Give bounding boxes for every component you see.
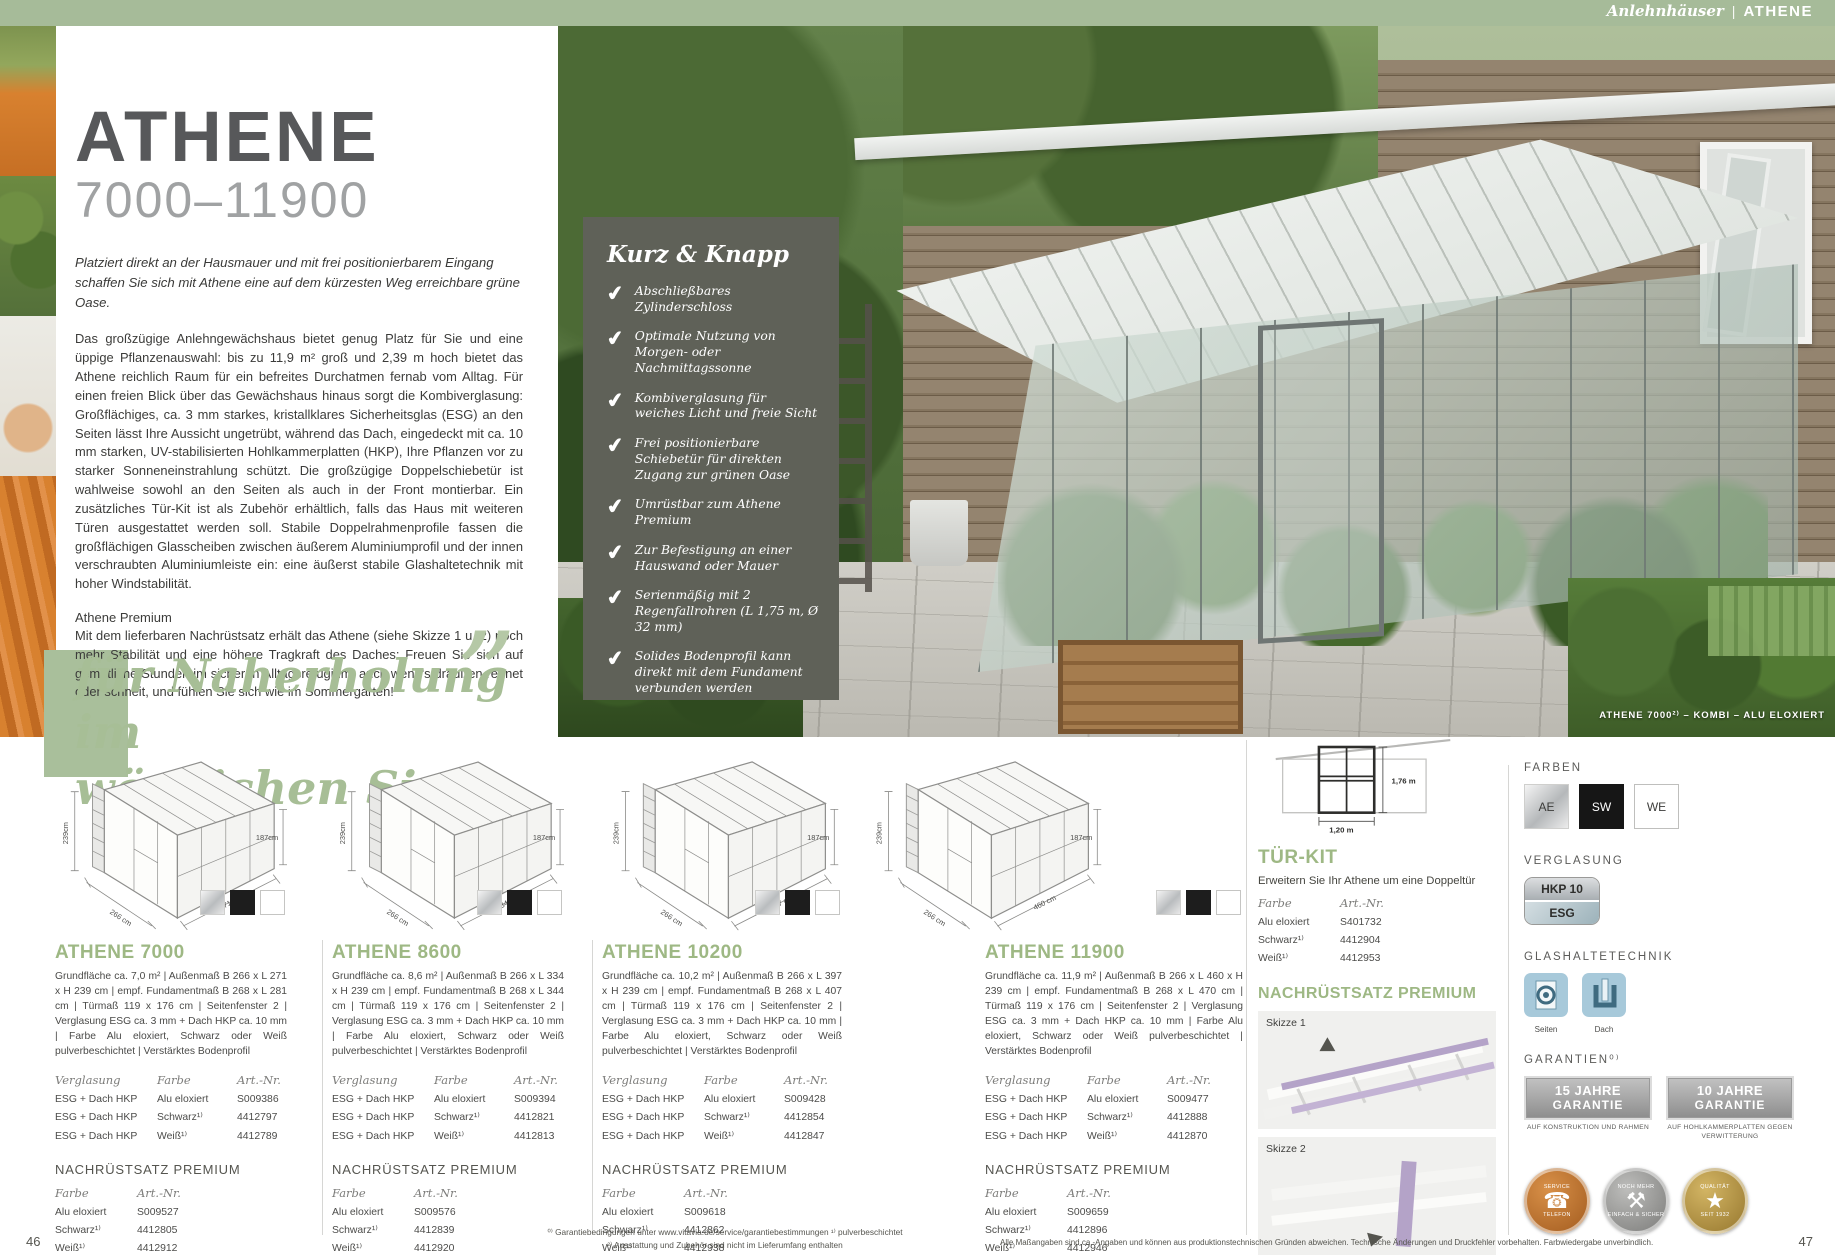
dim-wall-height: 239cm <box>612 822 621 844</box>
feature-text: Optimale Nutzung von Morgen- oder Nachmi… <box>635 329 819 376</box>
table-row: Schwarz¹⁾4412904 <box>1258 932 1496 950</box>
table-row: Schwarz¹⁾4412805 <box>55 1222 287 1240</box>
verglasung-title: VERGLASUNG <box>1524 855 1814 867</box>
check-icon: ✔ <box>606 496 625 518</box>
greenhouse-diagram: 239cm 187cm 266 cm 460 cm <box>835 752 1135 938</box>
sliding-door <box>1258 318 1384 644</box>
footnote-2: ²⁾ Ausstattung und Zubehör sind nicht im… <box>455 1239 995 1251</box>
tuerkit-subtitle: Erweitern Sie Ihr Athene um eine Doppelt… <box>1258 875 1496 887</box>
page-title: ATHENE <box>75 102 523 173</box>
table-header: FarbeArt.-Nr. <box>55 1186 287 1200</box>
retrofit-title: NACHRÜSTSATZ PREMIUM <box>332 1162 564 1177</box>
table-row: ESG + Dach HKPWeiß¹⁾4412789 <box>55 1128 287 1146</box>
flowers-photo <box>0 316 56 476</box>
color-swatches <box>1156 890 1241 915</box>
garden-fence <box>1708 586 1835 656</box>
table-row: Alu eloxiertS401732 <box>1258 914 1496 932</box>
breadcrumb-separator: | <box>1732 3 1736 19</box>
table-header: FarbeArt.-Nr. <box>602 1186 842 1200</box>
dim-width: 266 cm <box>659 907 684 928</box>
side-clamp-icon <box>1524 973 1568 1017</box>
table-row: Weiß¹⁾4412912 <box>55 1240 287 1258</box>
check-icon: ✔ <box>606 390 625 412</box>
table-row: Alu eloxiertS009527 <box>55 1204 287 1222</box>
table-row: Alu eloxiertS009659 <box>985 1204 1243 1222</box>
retrofit-title: NACHRÜSTSATZ PREMIUM <box>602 1162 842 1177</box>
table-header: Verglasung Farbe Art.-Nr. <box>332 1073 564 1087</box>
phone-icon: ☎ <box>1543 1190 1570 1212</box>
skizze-1-panel: Skizze 1 <box>1258 1011 1496 1129</box>
table-row: ESG + Dach HKPWeiß¹⁾4412870 <box>985 1128 1243 1146</box>
table-row: ESG + Dach HKPAlu eloxiertS009428 <box>602 1091 842 1109</box>
retrofit-premium-title: NACHRÜSTSATZ PREMIUM <box>1258 985 1496 1003</box>
feature-text: Kombiverglasung für weiches Licht und fr… <box>635 391 819 422</box>
product-description: Grundfläche ca. 8,6 m² | Außenmaß B 266 … <box>332 969 564 1059</box>
left-photo-strip <box>0 26 56 737</box>
tools-icon: ⚒ <box>1626 1190 1646 1212</box>
list-item: ✔Umrüstbar zum Athene Premium <box>607 497 819 528</box>
warranty-years: 10 JAHRE <box>1668 1083 1792 1098</box>
table-row: ESG + Dach HKPSchwarz¹⁾4412888 <box>985 1109 1243 1127</box>
table-header: FarbeArt.-Nr. <box>332 1186 564 1200</box>
swatch-alu-icon <box>755 890 780 915</box>
door-height-label: 1,76 m <box>1392 776 1416 785</box>
body-paragraph: Das großzügige Anlehngewächshaus bietet … <box>75 330 523 594</box>
dim-wall-height: 239cm <box>61 822 70 844</box>
swatch-weiss: WE <box>1634 784 1679 829</box>
list-item: ✔Optimale Nutzung von Morgen- oder Nachm… <box>607 329 819 376</box>
swatch-black-icon <box>785 890 810 915</box>
category-label: Anlehnhäuser <box>1607 2 1724 20</box>
col-art: Art.-Nr. <box>237 1073 287 1087</box>
tuerkit-title: TÜR-KIT <box>1258 847 1496 869</box>
table-row: Alu eloxiertS009618 <box>602 1204 842 1222</box>
dim-width: 266 cm <box>385 907 410 928</box>
warranty-10: 10 JAHRE GARANTIE AUF HOHLKAMMERPLATTEN … <box>1666 1076 1794 1142</box>
table-header: FarbeArt.-Nr. <box>1258 896 1496 910</box>
garantien-title: GARANTIEN⁰⁾ <box>1524 1052 1814 1066</box>
divider <box>592 940 593 1235</box>
table-header: Verglasung Farbe Art.-Nr. <box>602 1073 842 1087</box>
feature-text: Frei positionierbare Schiebetür für dire… <box>635 436 819 483</box>
list-item: ✔Zur Befestigung an einer Hauswand oder … <box>607 543 819 574</box>
table-header: Verglasung Farbe Art.-Nr. <box>985 1073 1243 1087</box>
photo-caption: ATHENE 7000²⁾ – KOMBI – ALU ELOXIERT <box>1513 710 1825 721</box>
dim-width: 266 cm <box>922 907 947 928</box>
swatch-alu-eloxiert: AE <box>1524 784 1569 829</box>
door-width-label: 1,20 m <box>1329 826 1353 835</box>
feature-text: Abschließbares Zylinderschloss <box>635 284 819 315</box>
col-color: Farbe <box>157 1073 237 1087</box>
product-name: ATHENE 11900 <box>985 942 1243 964</box>
roof-label: Dach <box>1582 1025 1626 1034</box>
table-header: Verglasung Farbe Art.-Nr. <box>55 1073 287 1087</box>
spec-sidebar: FARBEN AE SW WE VERGLASUNG HKP 10 ESG GL… <box>1524 762 1814 1234</box>
warranty-sub: AUF HOHLKAMMERPLATTEN GEGEN VERWITTERUNG <box>1666 1124 1794 1142</box>
feature-text: Solides Bodenprofil kann direkt mit dem … <box>635 649 819 696</box>
star-icon: ★ <box>1705 1190 1725 1212</box>
table-row: Alu eloxiertS009576 <box>332 1204 564 1222</box>
roof-profile-icon <box>1582 973 1626 1017</box>
list-item: ✔Abschließbares Zylinderschloss <box>607 284 819 315</box>
carrot-photo <box>0 26 56 176</box>
table-row: ESG + Dach HKPSchwarz¹⁾4412797 <box>55 1109 287 1127</box>
swatch-white-icon <box>537 890 562 915</box>
swatch-alu-icon <box>1156 890 1181 915</box>
swatch-black-icon <box>507 890 532 915</box>
glass-tech-icons: Seiten Dach <box>1524 973 1814 1034</box>
side-label: Seiten <box>1524 1025 1568 1034</box>
tools-badge: NOCH MEHR ⚒ EINFACH & SICHER <box>1603 1168 1669 1234</box>
page-number-left: 46 <box>26 1234 40 1249</box>
product-label: ATHENE <box>1743 3 1813 20</box>
table-header: FarbeArt.-Nr. <box>985 1186 1243 1200</box>
list-item: ✔Serienmäßig mit 2 Regenfallrohren (L 1,… <box>607 588 819 635</box>
swatch-white-icon <box>1216 890 1241 915</box>
footnotes: ⁰⁾ Garantiebedingungen unter www.vitavia… <box>455 1226 995 1251</box>
footnote-1: ⁰⁾ Garantiebedingungen unter www.vitavia… <box>455 1226 995 1238</box>
swatch-alu-icon <box>200 890 225 915</box>
color-swatches <box>477 890 562 915</box>
dim-wall-height: 239cm <box>875 822 884 844</box>
warranty-word: GARANTIE <box>1526 1098 1650 1112</box>
table-row: Weiß¹⁾4412953 <box>1258 950 1496 968</box>
dim-front-height: 187cm <box>1070 833 1092 842</box>
warranty-15: 15 JAHRE GARANTIE AUF KONSTRUKTION UND R… <box>1524 1076 1652 1142</box>
phone-service-badge: SERVICE ☎ TELEFON <box>1524 1168 1590 1234</box>
swatch-schwarz: SW <box>1579 784 1624 829</box>
glass-tech-roof: Dach <box>1582 973 1626 1034</box>
farben-title: FARBEN <box>1524 762 1814 774</box>
retrofit-title: NACHRÜSTSATZ PREMIUM <box>985 1162 1243 1177</box>
divider <box>322 940 323 1235</box>
divider <box>1246 740 1247 1235</box>
breadcrumb: Anlehnhäuser | ATHENE <box>1607 2 1813 20</box>
feature-text: Zur Befestigung an einer Hauswand oder M… <box>635 543 819 574</box>
dim-front-height: 187cm <box>256 833 278 842</box>
feature-text: Umrüstbar zum Athene Premium <box>635 497 819 528</box>
table-row: ESG + Dach HKPSchwarz¹⁾4412854 <box>602 1109 842 1127</box>
esg-label: ESG <box>1525 900 1599 924</box>
check-icon: ✔ <box>606 648 625 670</box>
disclaimer: Alle Maßangaben sind ca.-Angaben und kön… <box>1000 1238 1700 1247</box>
table-row: ESG + Dach HKPSchwarz¹⁾4412821 <box>332 1109 564 1127</box>
table-row: ESG + Dach HKPAlu eloxiertS009477 <box>985 1091 1243 1109</box>
product-name: ATHENE 10200 <box>602 942 842 964</box>
warranty-banners: 15 JAHRE GARANTIE AUF KONSTRUKTION UND R… <box>1524 1076 1814 1142</box>
model-range: 7000–11900 <box>75 175 523 225</box>
check-icon: ✔ <box>606 283 625 305</box>
skizze-2-panel: Skizze 2 <box>1258 1137 1496 1255</box>
check-icon: ✔ <box>606 435 625 457</box>
product-description: Grundfläche ca. 7,0 m² | Außenmaß B 266 … <box>55 969 287 1059</box>
swatch-black-icon <box>1186 890 1211 915</box>
color-swatches <box>755 890 840 915</box>
kurz-knapp-title: Kurz & Knapp <box>607 241 819 268</box>
warranty-years: 15 JAHRE <box>1526 1083 1650 1098</box>
swatch-white-icon <box>260 890 285 915</box>
product-description: Grundfläche ca. 11,9 m² | Außenmaß B 266… <box>985 969 1243 1059</box>
product-column: 239cm 187cm 266 cm 334 cm ATHENE 8600 Gr… <box>332 752 564 1258</box>
farben-swatches: AE SW WE <box>1524 784 1814 829</box>
divider <box>1508 765 1509 1235</box>
quality-badge: QUALITÄT ★ SEIT 1932 <box>1682 1168 1748 1234</box>
table-row: ESG + Dach HKPAlu eloxiertS009394 <box>332 1091 564 1109</box>
product-description: Grundfläche ca. 10,2 m² | Außenmaß B 266… <box>602 969 842 1059</box>
swatch-black-icon <box>230 890 255 915</box>
swatch-alu-icon <box>477 890 502 915</box>
check-icon: ✔ <box>606 328 625 350</box>
product-column: 239cm 187cm 266 cm 271 cm ATHENE 7000 Gr… <box>55 752 287 1258</box>
list-item: ✔Frei positionierbare Schiebetür für dir… <box>607 436 819 483</box>
kurz-knapp-panel: Kurz & Knapp ✔Abschließbares Zylindersch… <box>583 217 839 700</box>
dim-front-height: 187cm <box>533 833 555 842</box>
check-icon: ✔ <box>606 587 625 609</box>
door-diagram: 1,76 m 1,20 m <box>1258 728 1468 836</box>
warranty-word: GARANTIE <box>1668 1098 1792 1112</box>
col-glazing: Verglasung <box>55 1073 157 1087</box>
hkp-label: HKP 10 <box>1525 878 1599 900</box>
tuerkit-section: 1,76 m 1,20 m TÜR-KIT Erweitern Sie Ihr … <box>1258 728 1496 1255</box>
glazing-badge: HKP 10 ESG <box>1524 877 1600 925</box>
dim-wall-height: 239cm <box>338 822 347 844</box>
quote-mark-icon: ” <box>455 608 516 747</box>
product-column: 239cm 187cm 266 cm 397 cm ATHENE 10200 G… <box>602 752 842 1258</box>
catalog-page: Anlehnhäuser | ATHENE ATHENE 7000–11900 … <box>0 0 1835 1259</box>
color-swatches <box>200 890 285 915</box>
lead-paragraph: Platziert direkt an der Hausmauer und mi… <box>75 253 523 312</box>
retrofit-title: NACHRÜSTSATZ PREMIUM <box>55 1162 287 1177</box>
warranty-sub: AUF KONSTRUKTION UND RAHMEN <box>1524 1124 1652 1133</box>
list-item: ✔Kombiverglasung für weiches Licht und f… <box>607 391 819 422</box>
check-icon: ✔ <box>606 542 625 564</box>
glass-tech-side: Seiten <box>1524 973 1568 1034</box>
dim-width: 266 cm <box>108 907 133 928</box>
product-column: 239cm 187cm 266 cm 460 cm ATHENE 11900 G… <box>985 752 1243 1258</box>
list-item: ✔Solides Bodenprofil kann direkt mit dem… <box>607 649 819 696</box>
skizze-2-label: Skizze 2 <box>1266 1143 1306 1155</box>
header-bar: Anlehnhäuser | ATHENE <box>0 0 1835 26</box>
wooden-crate <box>1058 640 1243 734</box>
product-name: ATHENE 8600 <box>332 942 564 964</box>
glashaltetechnik-title: GLASHALTETECHNIK <box>1524 951 1814 963</box>
greens-photo <box>0 176 56 316</box>
service-badges: SERVICE ☎ TELEFON NOCH MEHR ⚒ EINFACH & … <box>1524 1168 1814 1234</box>
table-row: ESG + Dach HKPAlu eloxiertS009386 <box>55 1091 287 1109</box>
dim-front-height: 187cm <box>807 833 829 842</box>
planter-pot <box>910 500 968 566</box>
table-row: ESG + Dach HKPWeiß¹⁾4412847 <box>602 1128 842 1146</box>
feature-text: Serienmäßig mit 2 Regenfallrohren (L 1,7… <box>635 588 819 635</box>
skizze-1-label: Skizze 1 <box>1266 1017 1306 1029</box>
table-row: ESG + Dach HKPWeiß¹⁾4412813 <box>332 1128 564 1146</box>
product-name: ATHENE 7000 <box>55 942 287 964</box>
page-number-right: 47 <box>1799 1234 1813 1249</box>
